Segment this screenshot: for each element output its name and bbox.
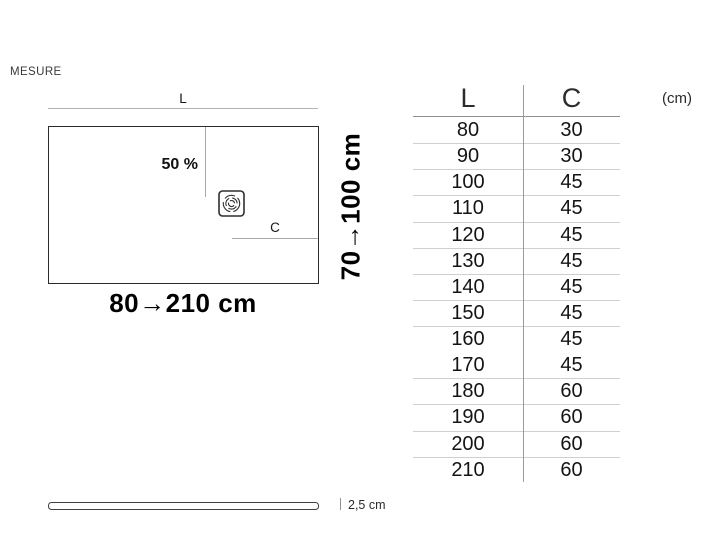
table-row: 14045 [413, 274, 620, 300]
cell-C: 45 [523, 196, 620, 221]
cell-L: 160 [413, 327, 523, 352]
cell-C: 60 [523, 458, 620, 483]
cell-C: 45 [523, 223, 620, 248]
measurement-sheet: MESURE L 50 % C 80→210 cm 70→100 cm L C … [0, 0, 720, 540]
table-row: 20060 [413, 431, 620, 457]
cell-L: 90 [413, 144, 523, 169]
cell-L: 180 [413, 379, 523, 404]
table-row: 15045 [413, 300, 620, 326]
size-table: L C 803090301004511045120451304514045150… [413, 85, 620, 483]
cell-C: 60 [523, 405, 620, 430]
page-title: MESURE [10, 66, 62, 78]
depth-range-label: 70→100 cm [336, 122, 367, 292]
table-row: 17045 [413, 352, 620, 378]
length-dim-label: L [48, 91, 318, 106]
cell-L: 150 [413, 301, 523, 326]
cell-C: 45 [523, 352, 620, 378]
cell-L: 80 [413, 117, 523, 143]
cell-L: 120 [413, 223, 523, 248]
cell-L: 190 [413, 405, 523, 430]
drain-icon [218, 190, 245, 222]
table-row: 8030 [413, 117, 620, 143]
thickness-tick [340, 498, 341, 510]
drain-dim-label: C [232, 220, 318, 235]
cell-L: 130 [413, 249, 523, 274]
cell-L: 140 [413, 275, 523, 300]
cell-C: 45 [523, 249, 620, 274]
cell-L: 110 [413, 196, 523, 221]
slope-line [205, 127, 206, 197]
tray-top-view [48, 126, 319, 284]
cell-C: 45 [523, 301, 620, 326]
cell-C: 60 [523, 432, 620, 457]
cell-C: 60 [523, 379, 620, 404]
cell-L: 200 [413, 432, 523, 457]
column-divider [523, 85, 524, 482]
size-table-header: L C [413, 85, 620, 117]
cell-L: 170 [413, 352, 523, 378]
thickness-label: 2,5 cm [348, 498, 386, 512]
cell-C: 45 [523, 275, 620, 300]
column-header-L: L [413, 85, 523, 116]
table-row: 10045 [413, 169, 620, 195]
cell-L: 100 [413, 170, 523, 195]
cell-L: 210 [413, 458, 523, 483]
length-range-label: 80→210 cm [48, 288, 318, 319]
cell-C: 30 [523, 144, 620, 169]
slope-label: 50 % [100, 156, 198, 174]
unit-label: (cm) [662, 90, 692, 107]
table-row: 11045 [413, 195, 620, 221]
table-row: 18060 [413, 378, 620, 404]
table-row: 12045 [413, 222, 620, 248]
size-table-body: 8030903010045110451204513045140451504516… [413, 117, 620, 483]
table-row: 19060 [413, 404, 620, 430]
tray-side-view [48, 502, 319, 510]
cell-C: 45 [523, 327, 620, 352]
table-row: 9030 [413, 143, 620, 169]
column-header-C: C [523, 85, 620, 116]
cell-C: 30 [523, 117, 620, 143]
table-row: 13045 [413, 248, 620, 274]
table-row: 16045 [413, 326, 620, 352]
drain-dim-line [232, 238, 318, 239]
length-dim-line [48, 108, 318, 109]
cell-C: 45 [523, 170, 620, 195]
table-row: 21060 [413, 457, 620, 483]
